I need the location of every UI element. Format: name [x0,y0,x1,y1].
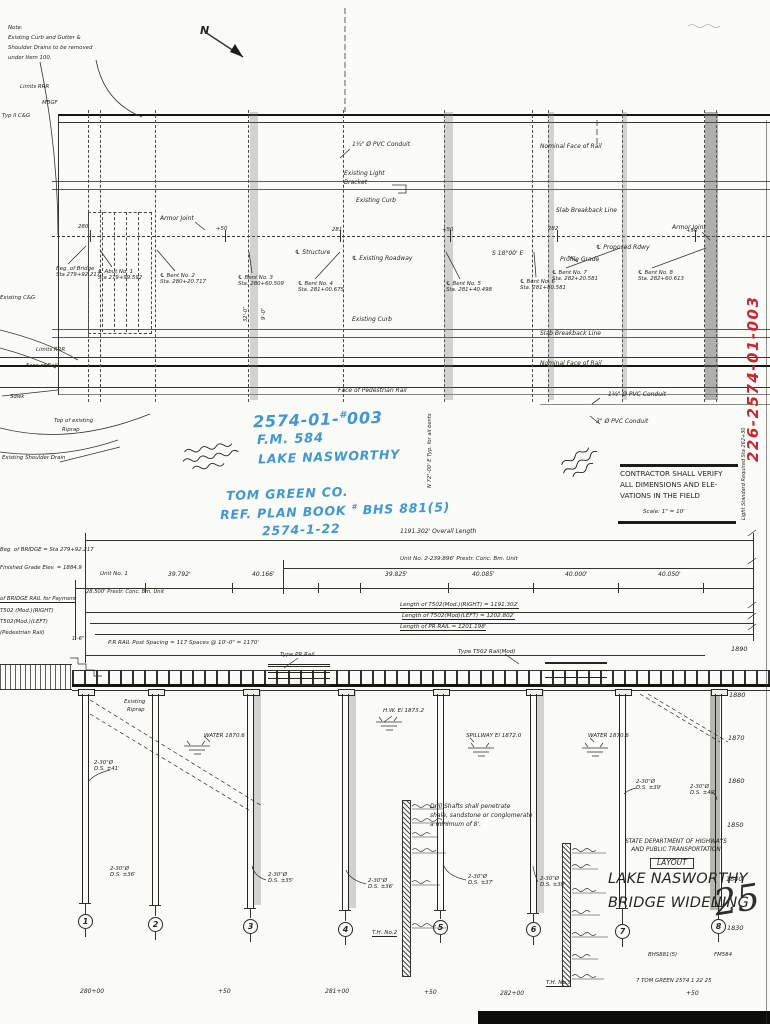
contractor-note: ALL DIMENSIONS AND ELE- [620,481,717,489]
callout-line: ℄ Bent No. 2 [160,273,195,279]
beam-line [72,690,770,691]
red-stamp-number: 226-2574-01-003 [744,296,762,462]
dim-terminal [753,533,754,641]
pvc-conduit-label: 1½" Ø PVC Conduit [352,142,410,149]
plan-station: 281 [332,227,342,233]
bent-number-bubble: 6 [526,922,541,937]
dim-tick [318,583,319,593]
note-line: Existing Curb and Gutter & [8,35,81,41]
sdwk-label: Sdwk [10,394,24,400]
pier-tick [533,936,534,945]
callout-sta: Sta. 281+40.498 [446,287,492,293]
dim-line [283,568,753,569]
pvc-conduit-label: 3" Ø PVC Conduit [596,419,648,426]
existing-bent-band [548,112,554,400]
limits-rrr-label: Limits RRR [36,347,65,353]
scale-note: Scale: 1" = 10' [643,509,685,515]
shaft-size: 2-30"Ø [468,874,487,880]
nominal-face-label: Nominal Face of Rail [540,361,602,368]
plan-station: +50 [442,227,453,233]
callout-sta: Sta 279+92.217 [56,272,100,278]
existing-curb-label: Existing Curb [352,317,392,324]
agency-name: STATE DEPARTMENT OF HIGHWAYS [610,839,742,846]
shaft-depth: D.S. ±36' [368,884,394,890]
pier-tick [718,933,719,942]
span-dim: 40.000' [565,572,588,579]
overall-length-label: 1191.302' Overall Length [400,529,476,536]
boring-log-column [402,800,411,977]
pier-tick [250,933,251,942]
elev-station: 282+00 [500,991,524,998]
test-hole-label: T.H. No.3 [546,980,571,987]
shaft-size: 2-30"Ø [690,784,709,790]
span-dim: 40.050' [658,572,681,579]
contractor-note: VATIONS IN THE FIELD [620,492,700,500]
callout-sta: Sta. 280+60.509 [238,281,284,287]
armor-joint-label: Armor Joint [160,216,194,223]
existing-cg-label: Existing C&G [0,295,35,301]
shaft-label: 2-30"Ø D.S. ±41' [94,760,120,773]
pier-tick [155,906,156,916]
pier-tick [533,914,534,922]
existing-bent-band [705,112,718,400]
cl-structure-label: ℄ Structure [295,250,330,257]
pier-tick [345,936,346,945]
blue-note-part: REF. PLAN BOOK [220,503,347,522]
note-line: under Item 100. [8,55,52,61]
existing-pier-band [349,690,356,908]
dim-1-6-label: 1'-6" [72,637,84,643]
existing-pier-band [254,690,261,905]
pr-rail-detail [268,664,330,686]
span-dim: 39.825' [385,572,408,579]
bent-callout: Beg. of Bridge Sta 279+92.217 [56,266,100,279]
bent-number-bubble: 7 [615,924,630,939]
bent-number-bubble: 4 [338,922,353,937]
plan-line [52,337,770,338]
bent-callout: ℄ Bent No. 2 Sta. 280+20.717 [160,273,206,286]
bent-callout: ℄ Bent No. 5 Sta. 281+40.498 [446,281,492,294]
shaft-size: 2-30"Ø [110,866,129,872]
existing-riprap-label: Riprap [127,707,145,713]
blue-note-part: BHS 881(5) [362,499,450,517]
callout-sta: Sta. 281+00.675 [298,287,344,293]
shaft-label: 2-30"Ø D.S. ±39' [636,779,662,792]
riprap-label: Riprap [62,427,80,433]
plan-sheet: Note: Existing Curb and Gutter & Shoulde… [0,0,770,1024]
elev-station: 280+00 [80,989,104,996]
typ2-cg-label: Typ II C&G [2,113,30,119]
rail-length-label: Length of PR RAIL = 1201.198' [400,624,486,631]
plan-line [0,357,770,358]
bent-pier [247,694,254,908]
pier-tick [85,928,86,937]
slab-breakback-label: Slab Breakback Line [556,208,617,215]
beg-bridge-label: Beg. of BRIDGE = Sta 279+92.217 [0,547,94,553]
dim-32-label: 32'-0" [243,306,249,322]
sheet-edge-line [766,120,767,1024]
blue-note-lake: LAKE NASWORTHY [258,447,401,467]
t502-rail-detail [545,662,607,686]
callout-sta: Sta. 281+80.581 [520,285,566,291]
rail-length-label: Length of T502(Mod)(LEFT) = 1202.802' [402,613,515,620]
callout-line: ℄ Bent No. 4 [298,281,333,287]
blue-note-hash: # [351,502,357,511]
elevation-linework [70,530,756,884]
bent-callout: ℄ Abut No. 1 Sta 279+99.592 [98,269,142,282]
shaft-size: 2-30"Ø [94,760,113,766]
skew-bearing-label: S 18°00' E [492,251,523,258]
bent-pier [152,694,159,905]
sheet-title: LAYOUT [650,858,694,869]
dim-tick [448,583,449,593]
dim-terminal [75,580,76,640]
existing-bent-band [444,112,453,400]
span-dim: 40.085' [472,572,495,579]
bent-callout: ℄ Bent No. 8 Sta. 282+60.613 [638,270,684,283]
note-line: Shoulder Drains to be removed [8,45,92,51]
shaft-depth: D.S. ±37' [468,880,494,886]
cl-existing-roadway-label: ℄ Existing Roadway [352,256,412,263]
plan-bent-line [248,110,249,402]
bent-number-bubble: 3 [243,919,258,934]
bent-pier [530,694,537,913]
callout-sta: Sta. 282+60.613 [638,276,684,282]
elev-axis-label: 1880 [729,692,746,699]
shaft-size: 2-30"Ø [540,876,559,882]
plan-station: 280 [78,224,88,230]
shaft-depth: D.S. ±41' [94,766,120,772]
test-hole-label: T.H. No.2 [372,930,397,937]
callout-line: ℄ Bent No. 3 [238,275,273,281]
spillway-el-label: SPILLWAY El 1872.0 [466,733,521,739]
post-spacing-label: P.R RAIL Post Spacing = 117 Spaces @ 10'… [108,640,259,646]
bent-number-bubble: 2 [148,917,163,932]
elev-station: +50 [424,990,437,997]
shaft-size: 2-30"Ø [268,872,287,878]
shaft-depth: D.S. ±40' [690,790,716,796]
unit1-label: Unit No. 1 [100,571,128,577]
county-control-row: 7 TOM GREEN 2574 1 22 25 [636,978,712,984]
shaft-depth: D.S. ±39' [636,785,662,791]
ped-rail-label: (Pedestrian Rail) [0,630,45,636]
dim-line [75,588,753,589]
bearing-note-label: N 72°-00' E Typ. for all bents [427,413,433,488]
t502-right-label: T502 (Mod.)(RIGHT) [0,608,54,614]
shaft-label: 2-30"Ø D.S. ±37' [468,874,494,887]
blue-note-plan-book: REF. PLAN BOOK # BHS 881(5) [220,499,451,522]
callout-line: ℄ Bent No. 5 [446,281,481,287]
callout-line: Beg. of Bridge [56,266,94,272]
plan-bottom-edge-line [0,365,770,367]
elev-axis-label: 1830 [727,925,744,932]
plan-line [52,181,770,182]
nominal-face-label: Nominal Face of Rail [540,144,602,151]
face-ped-rail-label: Face of Pedestrian Rail [338,388,407,395]
blue-note-date: 2574-1-22 [262,521,341,539]
blue-note-fm: F.M. 584 [257,431,324,448]
conduit-line [540,404,770,405]
type-t502-label: Type T502 Rail(Mod) [458,649,515,655]
dim-tick [360,583,361,593]
existing-bent-band [250,112,258,400]
mbgf-label: MBGF [42,100,58,106]
slab-breakback-label: Slab Breakback Line [540,331,601,338]
plan-bent-line [343,110,344,402]
pier-tick [250,909,251,918]
existing-bent-band [622,112,627,400]
rail-payment-label: of BRIDGE RAIL for Payment [0,596,76,603]
elev-station: 281+00 [325,989,349,996]
bent-pier [437,694,444,910]
elev-axis-label: 1850 [727,822,744,829]
elev-axis-label: 1860 [728,778,745,785]
sheet-number-script: 25 [711,877,763,925]
note-rule [618,521,736,524]
plan-line [58,122,770,123]
north-label: N [200,25,209,38]
ref-plan-number: BHS881(5) [648,952,677,958]
plan-line [52,329,770,330]
blue-note-part: 003 [347,408,383,428]
light-bracket-label: Bracket [344,180,367,187]
dim-tick [618,583,619,593]
blue-note-part: 2574-01- [253,409,340,431]
light-bracket-label: Existing Light [344,171,385,178]
callout-line: ℄ Bent No. 6 [520,279,555,285]
callout-sta: Sta. 280+20.717 [160,279,206,285]
approach-hatch [0,664,72,690]
contractor-note: CONTRACTOR SHALL VERIFY [620,470,723,478]
span-dim: 40.166' [252,572,275,579]
bent-pier [342,694,349,910]
pier-tick [85,904,86,914]
callout-line: ℄ Bent No. 8 [638,270,673,276]
bent-number-bubble: 1 [78,914,93,929]
callout-line: ℄ Bent No. 7 [552,270,587,276]
existing-riprap-label: Existing [124,699,145,705]
pier-tick [345,911,346,921]
plan-station: +50 [686,228,697,234]
bent-pier [82,694,89,903]
dim-tick [703,583,704,593]
plan-centerline [52,236,770,237]
station-tick [90,230,91,242]
shaft-depth: D.S. ±35' [268,878,294,884]
bent-callout: ℄ Bent No. 7 Sta. 282+20.581 [552,270,598,283]
span-dim: 39.792' [168,572,191,579]
elev-station: +50 [218,989,231,996]
ref-highway-number: FM584 [714,952,732,958]
deck-line [72,684,770,687]
note-rule [620,464,738,467]
dim-line [85,655,705,656]
elev-axis-label: 1890 [731,646,748,653]
shaft-size: 2-30"Ø [636,779,655,785]
plan-station: 282 [548,226,558,232]
water-el-label: WATER 1870.6 [588,733,629,739]
dim-line [85,540,753,541]
dim-tick [533,583,534,593]
riprap-label: Top of existing [54,418,93,424]
rail-posts [72,671,770,684]
pier-tick [440,934,441,943]
plan-top-edge-line [58,114,770,116]
limits-rrr-label: Limits RRR [20,84,49,90]
shaft-label: 2-30"Ø D.S. ±40' [690,784,716,797]
note-title: Note: [8,25,23,31]
shaft-label: 2-30"Ø D.S. ±35' [268,872,294,885]
bent-callout: ℄ Bent No. 3 Sta. 280+60.509 [238,275,284,288]
bent-callout: ℄ Bent No. 4 Sta. 281+00.675 [298,281,344,294]
blue-note-control-number: 2574-01-#003 [253,408,383,432]
shaft-label: 2-30"Ø D.S. ±36' [110,866,136,879]
profile-grade-label: Profile Grade [560,257,599,264]
face-of-rail-label: Face of Rail [26,363,57,369]
rail-length-label: Length of T502(Mod.)(RIGHT) = 1191.302' [400,602,519,609]
pvc-conduit-label: 1½" Ø PVC Conduit [608,392,666,399]
blue-note-county: TOM GREEN CO. [226,484,349,503]
type-pr-rail-label: Type PR Rail [280,652,314,658]
plan-station: +50 [216,226,227,232]
boring-log-column [562,843,571,987]
pier-tick [440,911,441,919]
drill-note: a minimum of 8'. [430,822,481,829]
pier-tick [622,938,623,947]
shaft-depth: D.S. ±36' [110,872,136,878]
callout-sta: Sta 279+99.592 [98,275,142,281]
water-el-label: WATER 1870.6 [204,733,245,739]
dim-9-label: 9'-0" [261,308,267,320]
cl-proposed-rdwy-label: ℄ Proposed Rdwy [596,245,650,252]
pier-tick [155,931,156,940]
elev-axis-label: 1870 [728,735,745,742]
callout-sta: Sta. 282+20.581 [552,276,598,282]
drill-note: shale, sandstone or conglomerate [430,813,532,820]
t502-left-label: T502(Mod.)(LEFT) [0,619,48,625]
elev-station: +50 [686,991,699,998]
unit2-label: Unit No. 2-239.896' Prestr. Conc. Bm. Un… [400,556,518,562]
bent-number-bubble: 5 [433,920,448,935]
existing-curb-label: Existing Curb [356,198,396,205]
shaft-label: 2-30"Ø D.S. ±36' [368,878,394,891]
agency-name: AND PUBLIC TRANSPORTATION [610,847,742,854]
plan-line [52,189,770,190]
unit1-label: 28.500' Prestr. Conc. Bm. Unit [86,590,164,596]
plan-bent-line [155,110,156,402]
dim-line [95,634,753,635]
hw-el-label: H.W. El 1873.2 [383,708,424,714]
shoulder-drain-label: Existing Shoulder Drain [2,455,65,461]
plan-bent-line [532,110,533,402]
scan-smudge [478,1011,770,1024]
dim-tick [232,583,233,593]
fin-grade-label: Finished Grade Elev. = 1884.9 [0,565,82,571]
callout-line: ℄ Abut No. 1 [98,269,133,275]
drill-note: Drill Shafts shall penetrate [430,804,510,811]
dim-terminal [283,560,284,594]
shaft-size: 2-30"Ø [368,878,387,884]
